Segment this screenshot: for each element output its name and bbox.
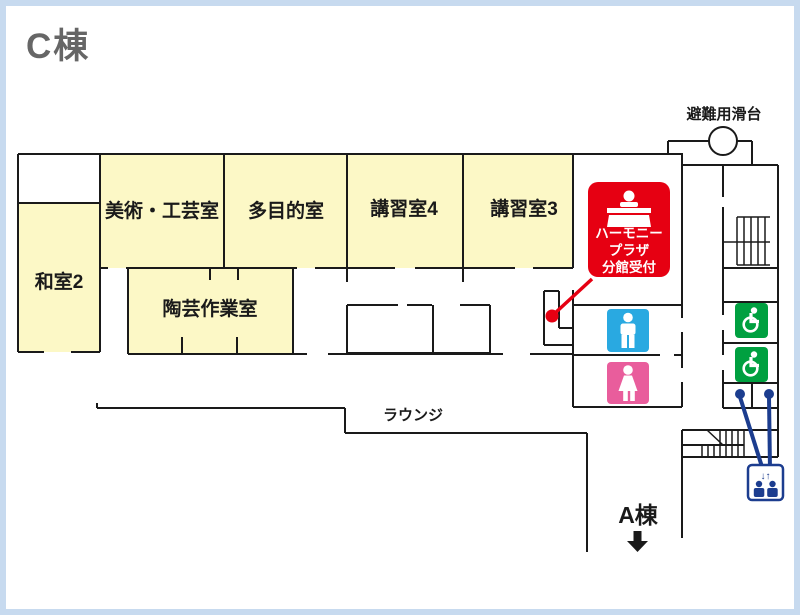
room-washitsu2-label: 和室2 <box>35 270 84 293</box>
elevator-location-dot-2 <box>764 389 774 399</box>
room-multipurpose-label: 多目的室 <box>248 199 324 222</box>
evacuation-slide-circle <box>709 127 737 155</box>
reception-location-dot <box>546 310 559 323</box>
room-seminar4-label: 講習室4 <box>370 197 438 220</box>
room-art-craft-label: 美術・工芸室 <box>105 199 219 222</box>
reception-label-line3: 分館受付 <box>602 259 656 275</box>
elevator-arrows: ↓↑ <box>761 471 771 482</box>
room-seminar3-label: 講習室3 <box>490 197 558 220</box>
reception-label-line2: プラザ <box>609 243 650 258</box>
evacuation-slide-label: 避難用滑台 <box>686 105 761 123</box>
elevator-icon: ↓↑ <box>748 465 783 500</box>
wheelchair-icon-1 <box>735 303 768 338</box>
elevator-leader-line-2 <box>769 397 770 470</box>
womens-toilet-icon <box>607 362 649 404</box>
lounge-label: ラウンジ <box>383 407 443 424</box>
floor-map-page: C棟 避難用滑台 和室2 美術・工芸室 多目的室 講習室4 講習室3 陶芸作業室… <box>0 0 800 615</box>
floor-plan-svg: C棟 避難用滑台 和室2 美術・工芸室 多目的室 講習室4 講習室3 陶芸作業室… <box>0 0 800 615</box>
elevator-location-dot-1 <box>735 389 745 399</box>
reception-badge: ハーモニー プラザ 分館受付 <box>588 182 670 277</box>
page-frame <box>3 3 797 612</box>
reception-label-line1: ハーモニー <box>595 226 663 241</box>
room-pottery-label: 陶芸作業室 <box>162 297 257 320</box>
building-a-label: A棟 <box>618 502 659 528</box>
wheelchair-icon-2 <box>735 347 768 382</box>
building-title: C棟 <box>26 27 90 66</box>
mens-toilet-icon <box>607 309 649 352</box>
room-small-white <box>18 154 100 203</box>
